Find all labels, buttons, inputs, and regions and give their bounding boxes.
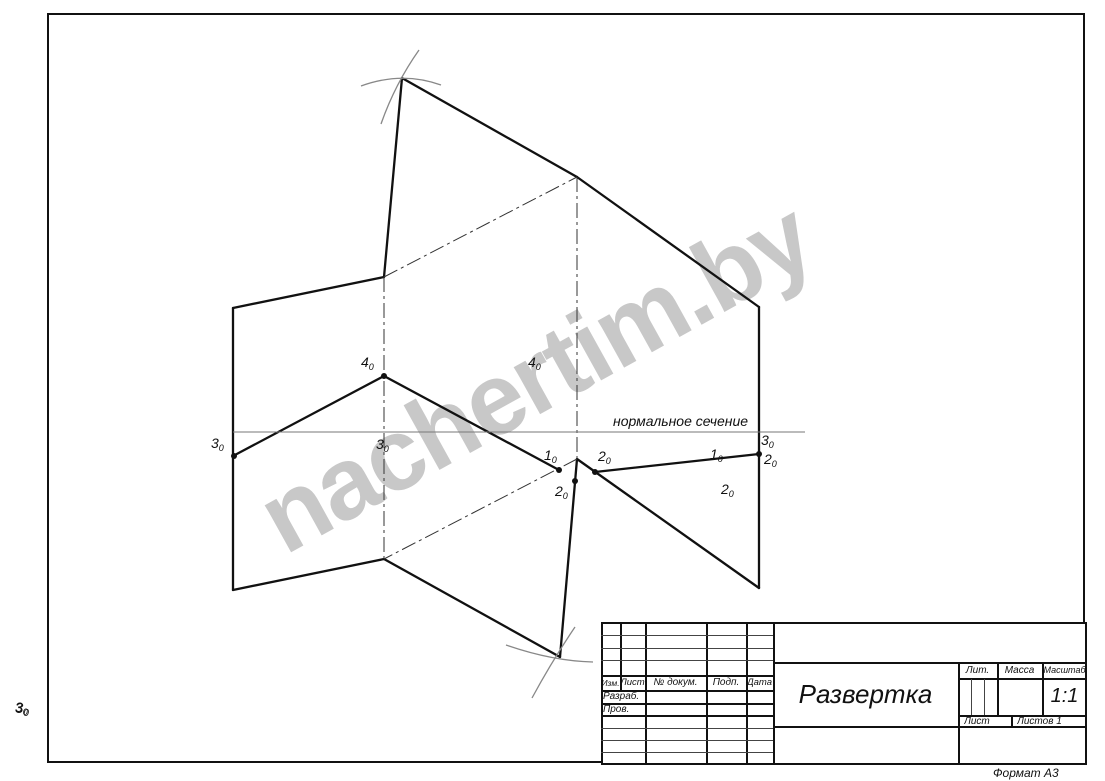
tb-line [706, 622, 708, 765]
point-label: 20 [555, 484, 568, 503]
point-label: 30 [376, 437, 389, 456]
point-marker [592, 469, 598, 475]
tb-header-list: Лист [620, 675, 645, 690]
tb-doc-title: Развертка [773, 662, 958, 726]
point-label: 20 [721, 482, 734, 501]
tb-header-data: Дата [746, 675, 773, 690]
outline-edge [233, 376, 384, 456]
tb-line [601, 763, 1087, 765]
centerline-dashdot [384, 459, 577, 559]
tb-mass-label: Масса [997, 662, 1042, 678]
tb-header-docnum: № докум. [645, 675, 706, 690]
point-marker [231, 453, 237, 459]
tb-line [1011, 715, 1013, 727]
point-marker [381, 373, 387, 379]
tb-line [746, 622, 748, 765]
tb-lit-label: Лит. [958, 662, 997, 678]
outline-edge [577, 459, 759, 588]
format-label: Формат А3 [993, 766, 1059, 780]
point-label: 30 [761, 433, 774, 452]
outline-edge [595, 454, 759, 472]
tb-line [971, 679, 972, 715]
tb-scale-value: 1:1 [1042, 678, 1087, 715]
outline-edge [577, 177, 759, 307]
tb-line [601, 648, 773, 649]
centerline-dashdot [384, 177, 577, 277]
normal-section-label: нормальное сечение [613, 413, 748, 429]
point-marker [572, 478, 578, 484]
tb-scale-label: Масштаб [1042, 662, 1087, 678]
point-marker [556, 467, 562, 473]
tb-line [601, 635, 773, 636]
tb-header-podp: Подп. [706, 675, 746, 690]
tb-line [601, 752, 773, 753]
outline-edge [233, 559, 384, 590]
tb-header-izm: Изм. [601, 675, 620, 690]
tb-line [601, 715, 773, 717]
tb-line [601, 740, 773, 741]
point-label: 30 [211, 436, 224, 455]
tb-row-razrab: Разраб. [603, 690, 645, 703]
tb-line [984, 679, 985, 715]
tb-sheets-label: Листов 1 [1017, 715, 1087, 727]
point-label: 40 [528, 355, 541, 374]
tb-line [601, 660, 773, 661]
construction-arc [506, 645, 593, 662]
outline-edge [384, 376, 559, 470]
construction-arc [532, 627, 575, 698]
tb-sheet-label: Лист [964, 715, 1011, 727]
point-label: 10 [710, 447, 723, 466]
title-block: Изм. Лист № докум. Подп. Дата Разраб. Пр… [601, 622, 1087, 765]
point-label: 20 [764, 452, 777, 471]
tb-row-prov: Пров. [603, 703, 645, 715]
point-label: 30 [15, 700, 28, 719]
point-label: 10 [544, 448, 557, 467]
drawing-sheet: nachertim.by нормальное сечение 30 [0, 0, 1105, 781]
tb-line [601, 728, 773, 729]
outline-edge [233, 277, 384, 308]
point-label: 20 [598, 449, 611, 468]
tb-line [601, 622, 1087, 624]
point-label: 40 [361, 355, 374, 374]
construction-arc [381, 50, 419, 124]
tb-line [645, 622, 647, 765]
outline-edge [384, 559, 560, 657]
outline-edge [402, 78, 577, 177]
